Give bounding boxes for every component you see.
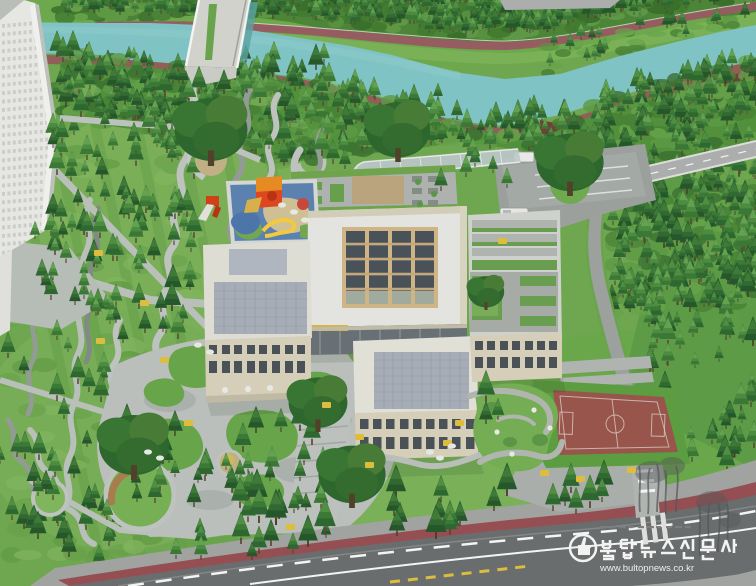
svg-text:www.bultopnews.co.kr: www.bultopnews.co.kr xyxy=(599,563,694,574)
